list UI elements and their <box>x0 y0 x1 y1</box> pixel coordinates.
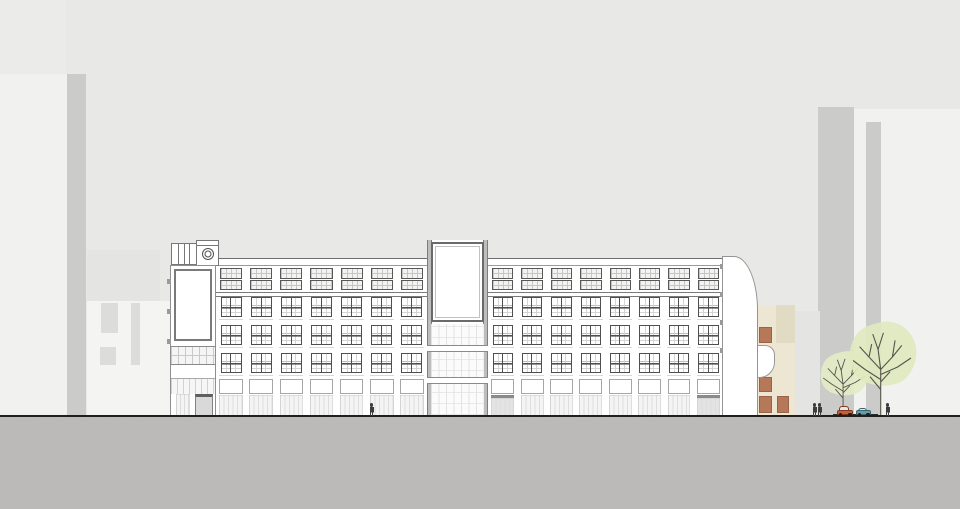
person <box>817 403 822 416</box>
person <box>885 403 890 416</box>
car-wheel <box>866 413 869 416</box>
car-wheel <box>848 413 851 416</box>
car-wheel <box>858 413 861 416</box>
elevation-scene <box>0 0 960 509</box>
person <box>369 403 374 416</box>
street-layer <box>0 0 960 509</box>
car-wheel <box>839 413 842 416</box>
car-car-red <box>837 406 853 416</box>
car-car-teal <box>856 408 871 416</box>
